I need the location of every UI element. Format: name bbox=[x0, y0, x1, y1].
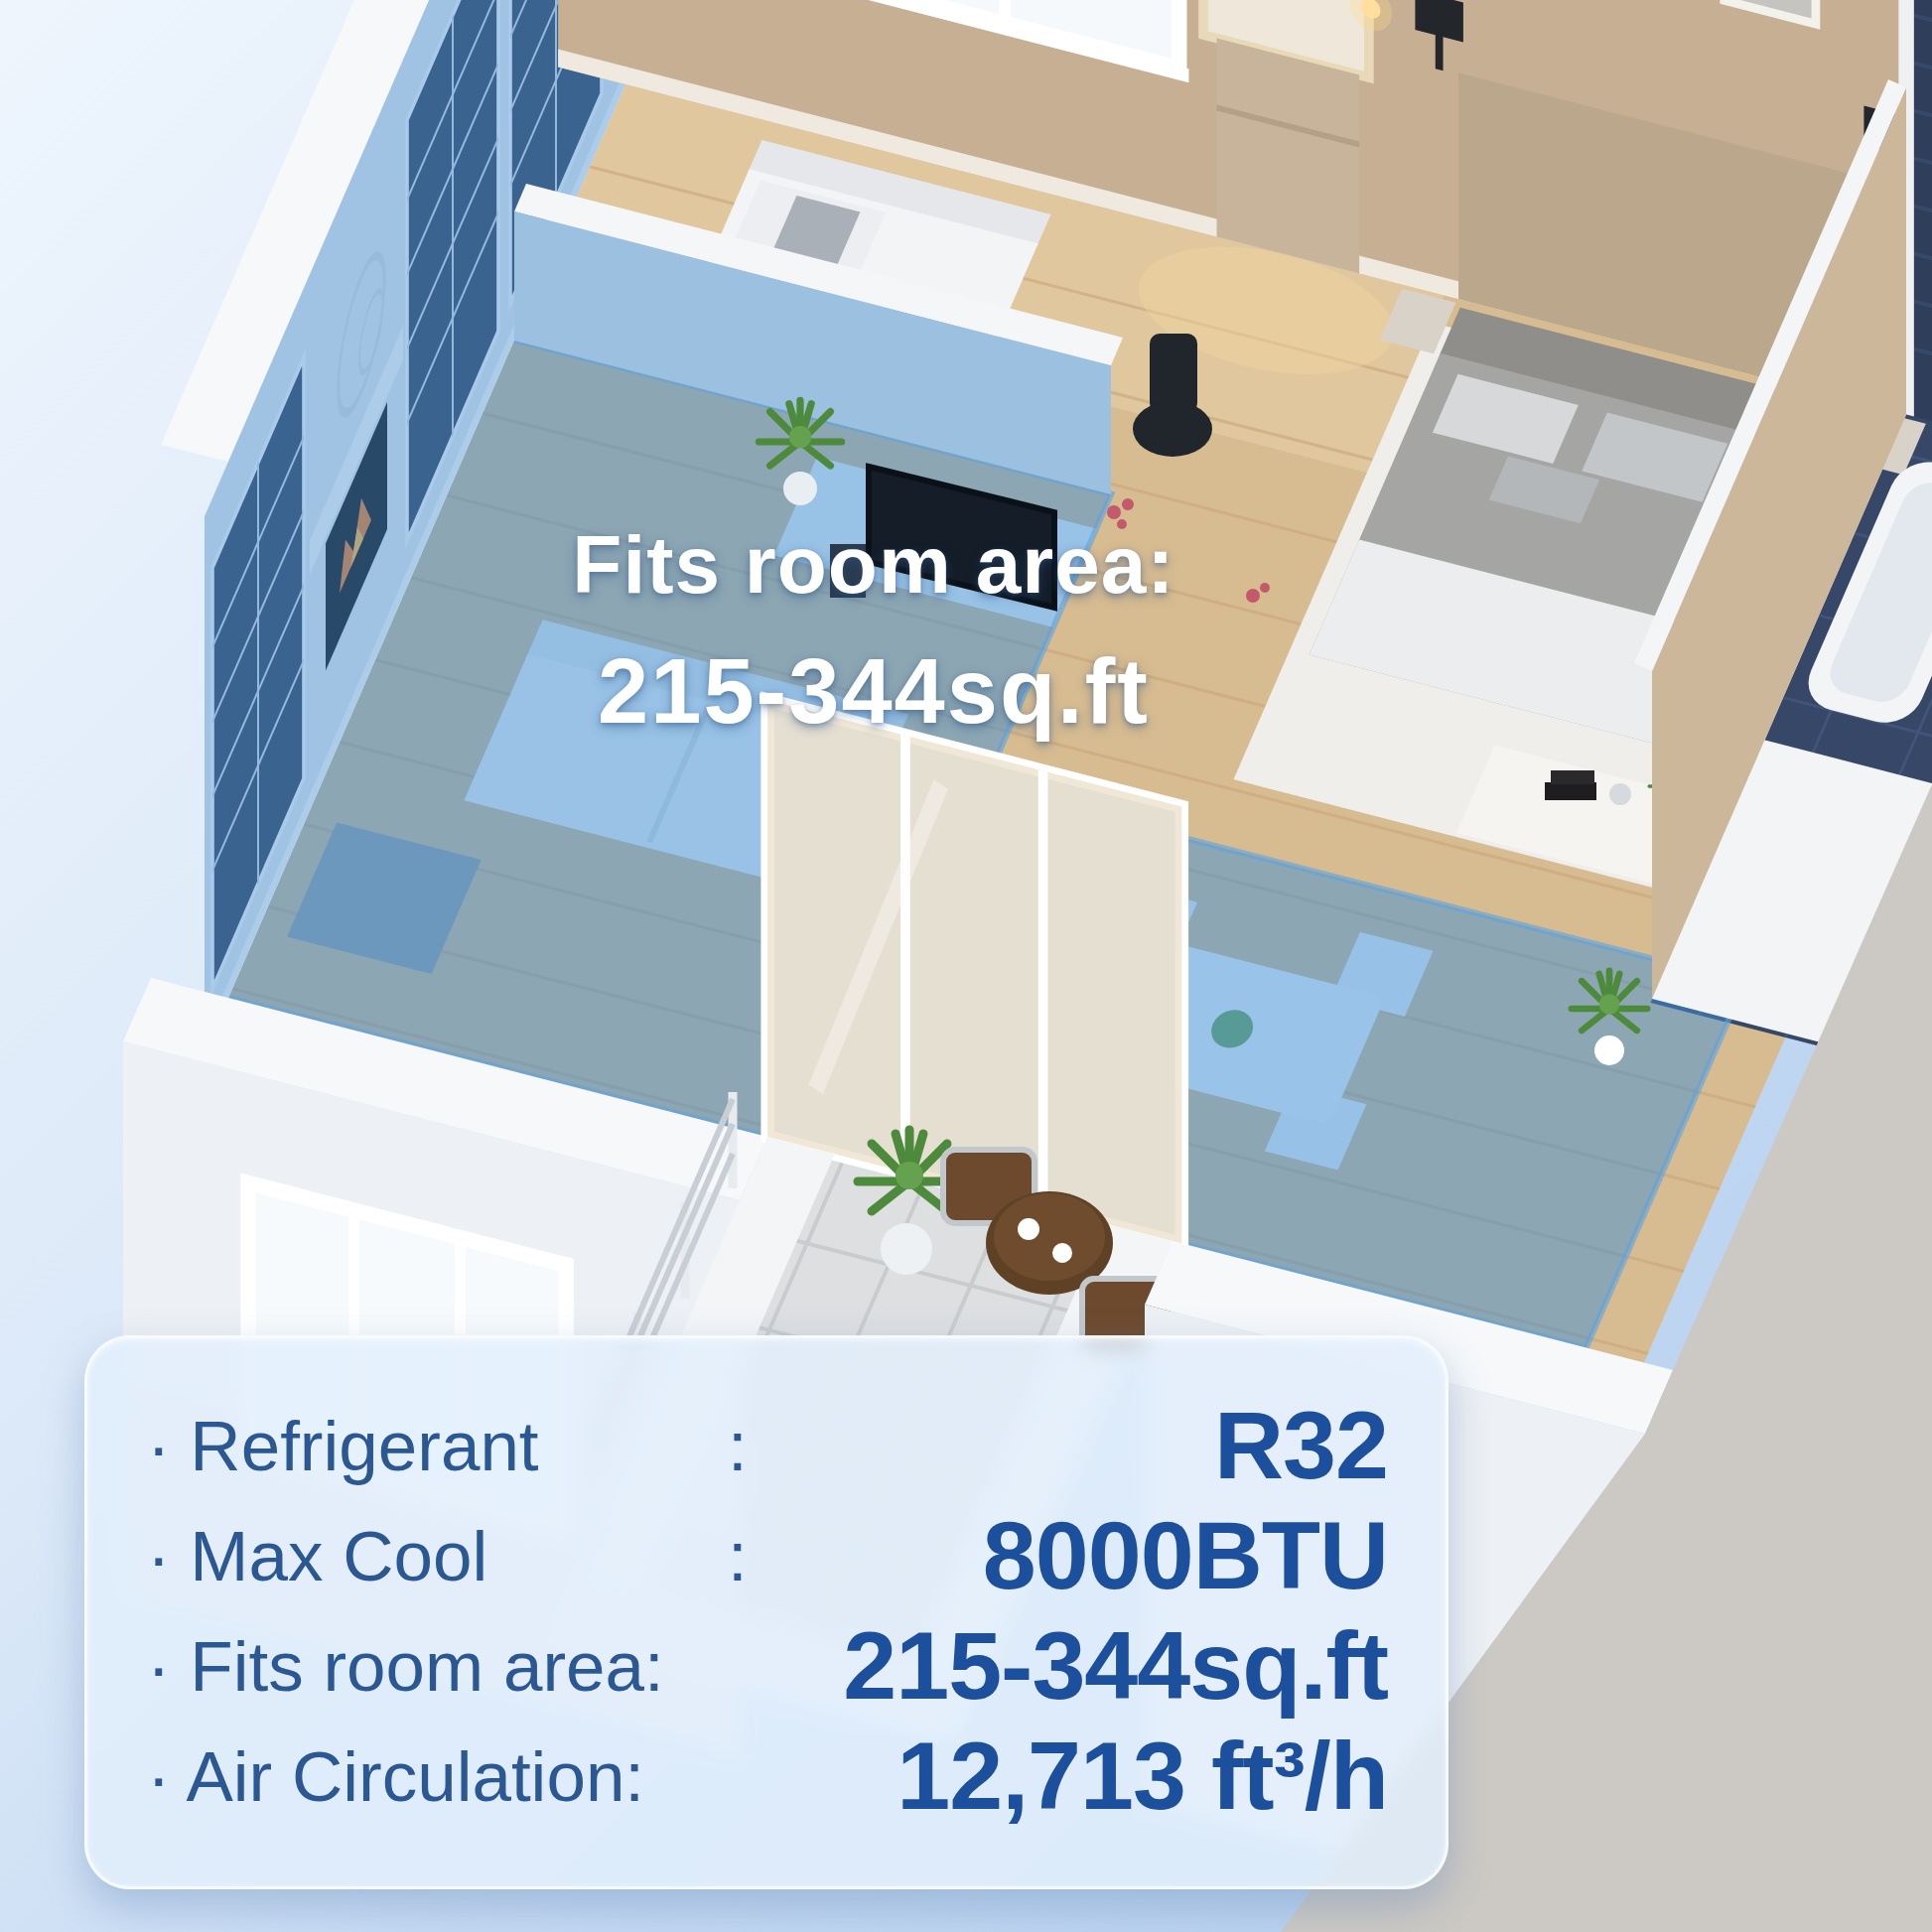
overlay-line2: 215-344sq.ft bbox=[467, 645, 1281, 737]
spec-row-fits-room-area: · Fits room area: 215-344sq.ft bbox=[147, 1610, 1388, 1721]
spec-label: · Refrigerant bbox=[147, 1405, 539, 1485]
product-infographic: Fits room area: 215-344sq.ft · Refrigera… bbox=[0, 0, 1932, 1932]
spec-value: R32 bbox=[1214, 1390, 1388, 1501]
spec-label: · Max Cool bbox=[147, 1515, 487, 1595]
spec-panel: · Refrigerant : R32 · Max Cool : 8000BTU… bbox=[84, 1335, 1449, 1889]
spec-row-refrigerant: · Refrigerant : R32 bbox=[147, 1390, 1388, 1500]
overlay-line1: Fits room area: bbox=[467, 524, 1281, 606]
spec-row-max-cool: · Max Cool : 8000BTU bbox=[147, 1500, 1388, 1610]
spec-value: 215-344sq.ft bbox=[843, 1610, 1388, 1722]
spec-colon: : bbox=[728, 1515, 748, 1595]
spec-value: 12,713 ft³/h bbox=[897, 1721, 1388, 1832]
spec-label: · Air Circulation: bbox=[147, 1735, 644, 1816]
spec-colon: : bbox=[728, 1405, 748, 1485]
spec-row-air-circulation: · Air Circulation: 12,713 ft³/h bbox=[147, 1721, 1388, 1831]
spec-value: 8000BTU bbox=[983, 1500, 1388, 1611]
spec-label: · Fits room area: bbox=[147, 1625, 664, 1706]
room-area-overlay: Fits room area: 215-344sq.ft bbox=[467, 524, 1281, 737]
